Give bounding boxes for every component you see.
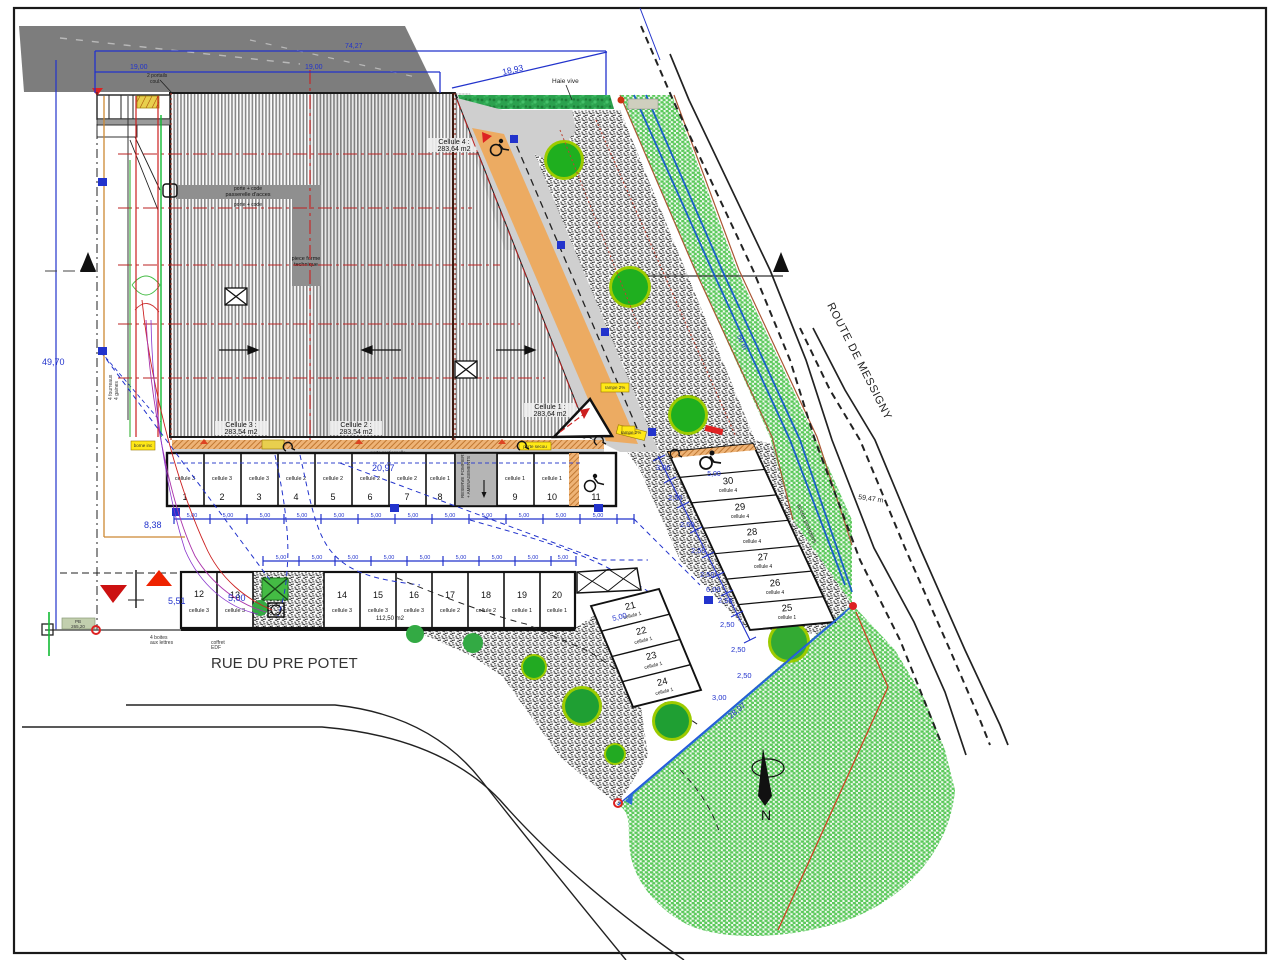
svg-text:3,06: 3,06 xyxy=(656,463,671,472)
svg-text:5,00: 5,00 xyxy=(556,513,567,519)
svg-text:Cellule 4 :: Cellule 4 : xyxy=(438,139,469,146)
svg-text:20: 20 xyxy=(552,590,562,600)
svg-text:19: 19 xyxy=(517,590,527,600)
svg-text:6,00: 6,00 xyxy=(706,585,721,594)
svg-text:283,64 m2: 283,64 m2 xyxy=(533,411,566,418)
svg-text:5,00: 5,00 xyxy=(371,513,382,519)
svg-text:Cellule 3 :: Cellule 3 : xyxy=(225,422,256,429)
svg-text:cellule 1: cellule 1 xyxy=(430,476,450,482)
svg-text:cellule 4: cellule 4 xyxy=(719,488,738,494)
svg-text:cellule 4: cellule 4 xyxy=(766,590,785,596)
svg-text:RUE DU PRE POTET: RUE DU PRE POTET xyxy=(211,655,358,672)
svg-text:5,00: 5,00 xyxy=(492,555,503,561)
svg-text:10: 10 xyxy=(547,492,557,502)
svg-text:5,00: 5,00 xyxy=(334,513,345,519)
svg-text:4 gaines: 4 gaines xyxy=(114,381,120,400)
svg-text:rampe 2%: rampe 2% xyxy=(605,385,626,390)
svg-text:rampe 2%: rampe 2% xyxy=(621,430,642,435)
svg-text:5,00: 5,00 xyxy=(408,513,419,519)
svg-text:19,00: 19,00 xyxy=(305,64,323,71)
svg-text:5,00: 5,00 xyxy=(260,513,271,519)
svg-text:283,64 m2: 283,64 m2 xyxy=(437,146,470,153)
svg-text:30: 30 xyxy=(722,476,733,488)
svg-text:74,27: 74,27 xyxy=(345,43,363,50)
svg-text:9: 9 xyxy=(512,492,517,502)
svg-text:cellule 3: cellule 3 xyxy=(189,608,209,614)
svg-text:5,00: 5,00 xyxy=(297,513,308,519)
svg-text:5,51: 5,51 xyxy=(168,596,186,606)
svg-text:coul.: coul. xyxy=(150,79,161,85)
svg-text:cellule 2: cellule 2 xyxy=(476,608,496,614)
svg-text:25: 25 xyxy=(781,603,792,615)
svg-text:8,38: 8,38 xyxy=(144,520,162,530)
svg-text:29: 29 xyxy=(734,502,745,514)
svg-text:5,00: 5,00 xyxy=(456,555,467,561)
svg-text:26: 26 xyxy=(769,578,780,590)
svg-text:3,00: 3,00 xyxy=(712,693,727,702)
svg-text:20,97: 20,97 xyxy=(372,463,395,473)
svg-text:2,50: 2,50 xyxy=(731,645,746,654)
svg-text:aux lettres: aux lettres xyxy=(150,640,174,646)
svg-text:5,00: 5,00 xyxy=(276,555,287,561)
svg-text:cellule 4: cellule 4 xyxy=(754,564,773,570)
svg-text:5,00: 5,00 xyxy=(519,513,530,519)
svg-text:5,00: 5,00 xyxy=(420,555,431,561)
svg-text:112,50 m2: 112,50 m2 xyxy=(376,616,405,622)
svg-text:283,54 m2: 283,54 m2 xyxy=(224,429,257,436)
svg-text:borne inc: borne inc xyxy=(134,443,153,448)
svg-text:cellule 4: cellule 4 xyxy=(731,514,750,520)
svg-text:2,50: 2,50 xyxy=(668,493,683,502)
svg-text:cellule 2: cellule 2 xyxy=(323,476,343,482)
svg-text:27: 27 xyxy=(757,552,768,564)
svg-text:5,00: 5,00 xyxy=(348,555,359,561)
svg-text:19,00: 19,00 xyxy=(130,64,148,71)
svg-text:passerelle d'acces: passerelle d'acces xyxy=(225,192,270,198)
svg-text:2,50: 2,50 xyxy=(691,546,706,555)
svg-text:Cellule 2 :: Cellule 2 : xyxy=(340,422,371,429)
svg-text:28: 28 xyxy=(746,527,757,539)
svg-text:5,00: 5,00 xyxy=(707,471,721,478)
svg-text:+ AMENAGEMENTS: + AMENAGEMENTS xyxy=(466,456,471,498)
svg-text:18: 18 xyxy=(481,590,491,600)
svg-text:cellule 1: cellule 1 xyxy=(505,476,525,482)
svg-text:16: 16 xyxy=(409,590,419,600)
svg-text:EDF: EDF xyxy=(211,645,221,651)
svg-text:cellule 3: cellule 3 xyxy=(404,608,424,614)
svg-text:15: 15 xyxy=(373,590,383,600)
svg-text:2,50: 2,50 xyxy=(680,520,695,529)
svg-text:5,00: 5,00 xyxy=(445,513,456,519)
svg-text:cellule 2: cellule 2 xyxy=(397,476,417,482)
svg-text:5,00: 5,00 xyxy=(558,555,569,561)
svg-text:cellule 3: cellule 3 xyxy=(212,476,232,482)
svg-text:5,00: 5,00 xyxy=(528,555,539,561)
svg-text:cellule 3: cellule 3 xyxy=(175,476,195,482)
svg-text:4: 4 xyxy=(293,492,298,502)
svg-text:2,50: 2,50 xyxy=(737,671,752,680)
svg-text:cellule 2: cellule 2 xyxy=(286,476,306,482)
svg-text:49,70: 49,70 xyxy=(42,357,65,367)
svg-text:2,50: 2,50 xyxy=(700,570,715,579)
svg-text:11: 11 xyxy=(591,492,600,502)
svg-text:cellule 3: cellule 3 xyxy=(249,476,269,482)
svg-text:6: 6 xyxy=(367,492,372,502)
svg-text:5,00: 5,00 xyxy=(593,513,604,519)
svg-text:cellule 3: cellule 3 xyxy=(332,608,352,614)
svg-text:2,50: 2,50 xyxy=(720,620,735,629)
svg-text:N: N xyxy=(761,807,771,823)
svg-text:cellule 1: cellule 1 xyxy=(542,476,562,482)
svg-text:5,00: 5,00 xyxy=(312,555,323,561)
svg-text:cellule 2: cellule 2 xyxy=(440,608,460,614)
svg-text:7: 7 xyxy=(404,492,409,502)
svg-text:2: 2 xyxy=(219,492,224,502)
svg-text:2,50: 2,50 xyxy=(718,596,733,605)
svg-text:12: 12 xyxy=(194,589,204,599)
svg-text:5,00: 5,00 xyxy=(223,513,234,519)
svg-text:RESERVE POMPIERS: RESERVE POMPIERS xyxy=(460,452,465,498)
svg-text:cellule 1: cellule 1 xyxy=(512,608,532,614)
svg-text:cellule 1: cellule 1 xyxy=(778,615,797,621)
svg-text:5: 5 xyxy=(330,492,335,502)
svg-text:3: 3 xyxy=(256,492,261,502)
svg-text:17: 17 xyxy=(445,590,455,600)
svg-text:Cellule 1 :: Cellule 1 : xyxy=(534,404,565,411)
svg-text:5,00: 5,00 xyxy=(228,593,246,603)
svg-text:cellule 4: cellule 4 xyxy=(743,539,762,545)
svg-text:5,00: 5,00 xyxy=(384,555,395,561)
svg-text:283,54 m2: 283,54 m2 xyxy=(339,429,372,436)
svg-text:14: 14 xyxy=(337,590,347,600)
svg-text:porte + code: porte + code xyxy=(234,202,262,208)
svg-text:cellule 3: cellule 3 xyxy=(368,608,388,614)
svg-text:265,20: 265,20 xyxy=(71,624,85,629)
svg-text:Haie vive: Haie vive xyxy=(552,78,579,85)
svg-text:cellule 1: cellule 1 xyxy=(547,608,567,614)
